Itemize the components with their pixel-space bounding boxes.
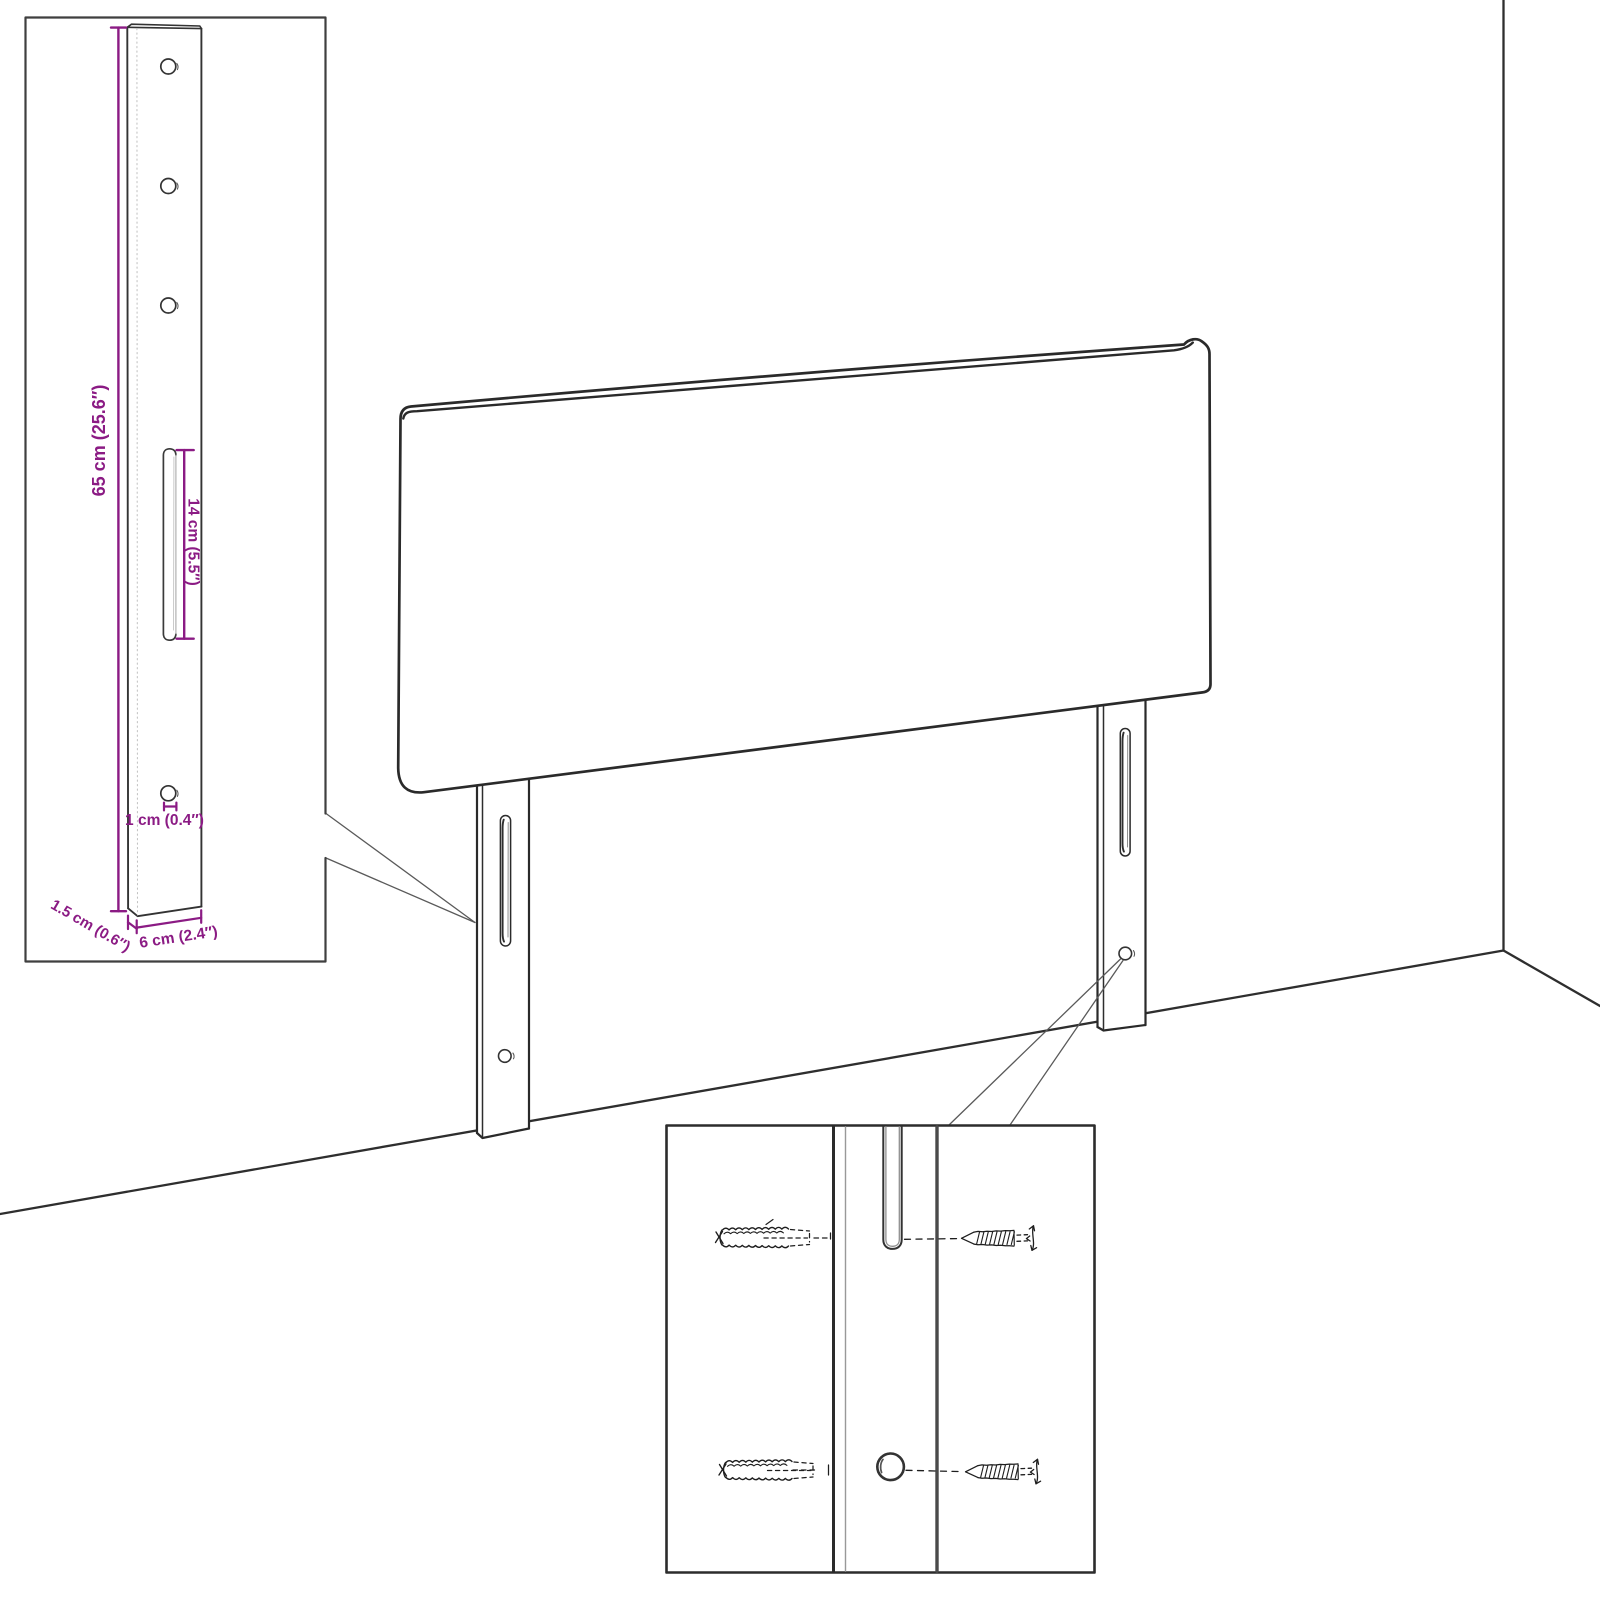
svg-text:1 cm (0.4″): 1 cm (0.4″) [125, 812, 204, 829]
svg-text:14 cm (5.5″): 14 cm (5.5″) [184, 498, 201, 586]
svg-text:65 cm (25.6″): 65 cm (25.6″) [89, 385, 109, 497]
